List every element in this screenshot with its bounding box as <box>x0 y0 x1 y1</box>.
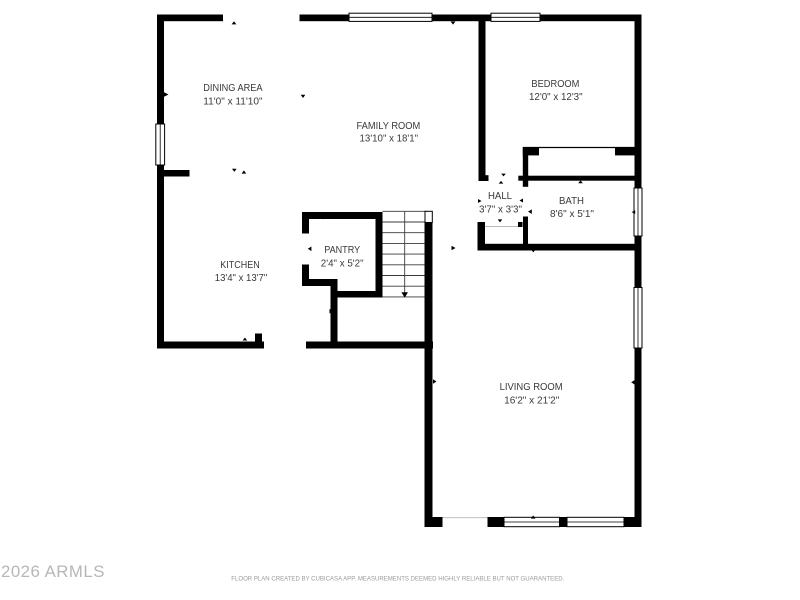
svg-text:FLOOR PLAN CREATED BY CUBICASA: FLOOR PLAN CREATED BY CUBICASA APP. MEAS… <box>231 576 564 583</box>
svg-text:13'10" x 18'1": 13'10" x 18'1" <box>360 134 419 145</box>
svg-text:BATH: BATH <box>559 196 584 207</box>
svg-text:16'2" x 21'2": 16'2" x 21'2" <box>504 396 560 407</box>
svg-text:11'0" x 11'10": 11'0" x 11'10" <box>203 97 263 108</box>
svg-text:LIVING ROOM: LIVING ROOM <box>500 382 563 393</box>
svg-text:FAMILY ROOM: FAMILY ROOM <box>357 121 421 132</box>
svg-text:HALL: HALL <box>488 191 512 202</box>
svg-text:PANTRY: PANTRY <box>324 245 360 256</box>
svg-text:BEDROOM: BEDROOM <box>531 79 579 90</box>
svg-text:KITCHEN: KITCHEN <box>220 260 259 271</box>
svg-text:8'6" x 5'1": 8'6" x 5'1" <box>550 209 594 220</box>
svg-text:13'4" x 13'7": 13'4" x 13'7" <box>215 273 268 284</box>
svg-text:12'0" x 12'3": 12'0" x 12'3" <box>529 92 583 103</box>
svg-text:2026 ARMLS: 2026 ARMLS <box>1 562 105 581</box>
svg-text:2'4" x 5'2": 2'4" x 5'2" <box>321 259 364 270</box>
svg-text:3'7" x 3'3": 3'7" x 3'3" <box>479 205 522 216</box>
svg-text:DINING AREA: DINING AREA <box>203 83 262 94</box>
